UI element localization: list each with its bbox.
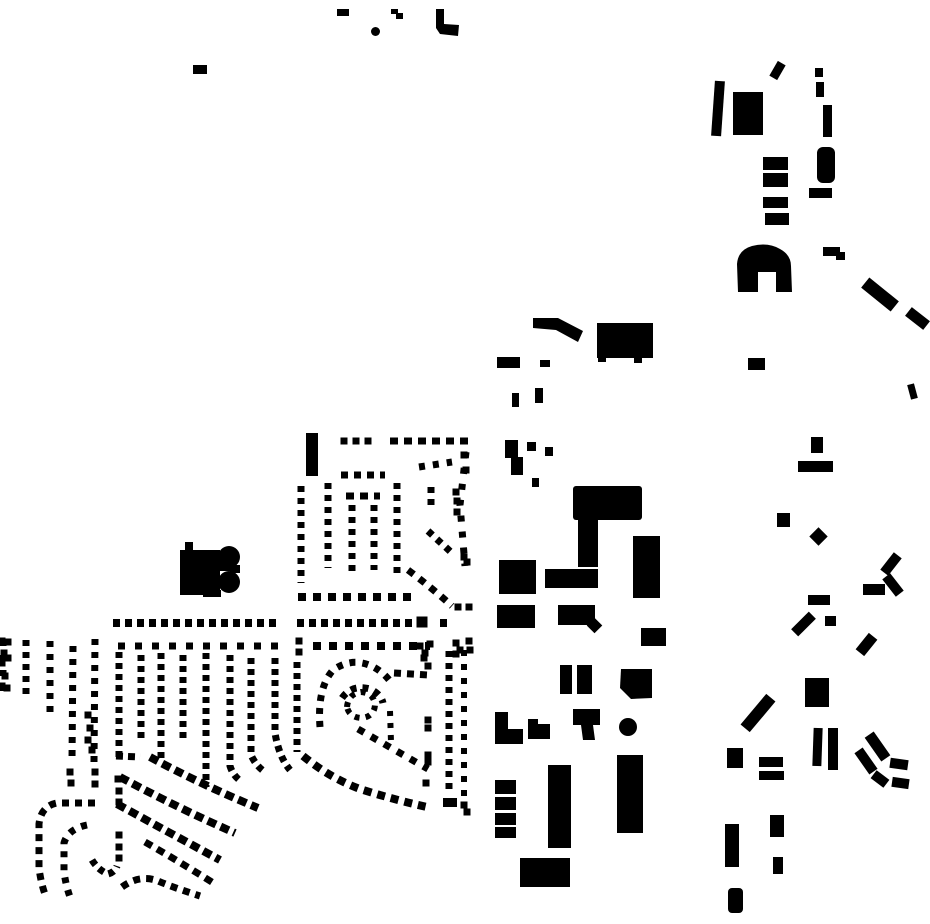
- house-dot: [116, 799, 123, 806]
- building-footprint: [532, 478, 539, 487]
- building-footprint: [733, 92, 763, 135]
- map-canvas: [0, 0, 930, 924]
- house-dot: [425, 725, 432, 732]
- building-footprint: [306, 433, 318, 476]
- house-dot: [453, 640, 460, 647]
- building-footprint: [805, 678, 829, 707]
- building-footprint: [765, 213, 789, 225]
- building-footprint: [573, 486, 642, 520]
- building-footprint: [798, 461, 833, 472]
- house-dot: [2, 673, 9, 680]
- house-dot: [464, 559, 471, 566]
- building-footprint: [218, 546, 240, 568]
- building-footprint: [495, 827, 516, 838]
- house-dot: [467, 647, 474, 654]
- house-dot: [365, 438, 372, 445]
- building-footprint: [185, 542, 193, 551]
- building-footprint: [578, 517, 598, 567]
- building-footprint: [836, 252, 845, 260]
- house-dot: [463, 467, 470, 474]
- building-footprint: [497, 605, 535, 628]
- building-footprint: [598, 356, 606, 362]
- building-footprint: [817, 147, 835, 183]
- building-footprint: [825, 616, 836, 626]
- building-footprint: [180, 550, 220, 595]
- building-footprint: [727, 748, 743, 768]
- building-footprint: [512, 393, 519, 407]
- building-footprint: [763, 197, 788, 208]
- house-dot: [4, 685, 11, 692]
- building-footprint: [545, 569, 598, 588]
- building-footprint: [617, 755, 643, 833]
- building-footprint: [812, 728, 822, 766]
- building-footprint: [728, 888, 743, 913]
- house-dot: [115, 776, 122, 783]
- building-footprint: [560, 665, 572, 694]
- house-dot: [296, 649, 303, 656]
- house-dot: [425, 752, 432, 759]
- building-footprint: [777, 513, 790, 527]
- building-footprint: [597, 323, 653, 358]
- house-dot: [454, 498, 461, 505]
- house-dot: [353, 438, 360, 445]
- building-footprint: [763, 157, 788, 170]
- building-footprint: [759, 757, 783, 767]
- building-footprint: [816, 82, 824, 97]
- building-footprint: [495, 797, 516, 810]
- house-dot: [116, 855, 123, 862]
- building-footprint: [193, 65, 207, 74]
- house-dot: [466, 604, 473, 611]
- house-dot: [425, 759, 432, 766]
- house-dot: [464, 809, 471, 816]
- building-footprint: [495, 813, 516, 825]
- building-footprint: [725, 824, 739, 867]
- house-dot: [85, 712, 92, 719]
- building-footprint: [218, 571, 240, 593]
- building-footprint: [499, 560, 536, 594]
- building-footprint: [823, 105, 832, 137]
- house-dot: [453, 651, 460, 658]
- building-footprint: [828, 728, 838, 770]
- building-footprint: [809, 188, 832, 198]
- dotted-street: [394, 673, 428, 675]
- house-dot: [425, 663, 432, 670]
- house-dot: [417, 617, 428, 628]
- building-footprint: [748, 358, 765, 370]
- dotted-street: [72, 646, 73, 760]
- house-dot: [92, 769, 99, 776]
- building-footprint: [443, 798, 457, 807]
- house-dot: [455, 604, 462, 611]
- house-dot: [466, 638, 473, 645]
- house-dot: [461, 452, 468, 459]
- building-footprint: [773, 857, 783, 874]
- house-dot: [461, 802, 468, 809]
- building-footprint: [811, 437, 823, 453]
- house-dot: [87, 725, 94, 732]
- house-dot: [425, 717, 432, 724]
- building-footprint: [548, 765, 571, 848]
- building-footprint: [535, 388, 543, 403]
- building-footprint: [527, 442, 536, 451]
- house-dot: [5, 655, 12, 662]
- building-footprint: [759, 771, 784, 780]
- house-dot: [85, 737, 92, 744]
- dotted-street: [390, 711, 391, 742]
- building-footprint: [633, 536, 660, 598]
- building-footprint: [577, 665, 592, 694]
- house-dot: [5, 639, 12, 646]
- building-footprint: [770, 815, 784, 837]
- building-footprint: [337, 9, 349, 16]
- building-footprint: [540, 360, 550, 367]
- house-dot: [421, 655, 428, 662]
- house-dot: [0, 660, 6, 667]
- house-dot: [341, 438, 348, 445]
- house-dot: [417, 643, 424, 650]
- house-dot: [89, 747, 96, 754]
- building-footprint: [558, 605, 595, 625]
- building-footprint: [634, 357, 642, 363]
- building-footprint: [371, 27, 380, 36]
- house-dot: [68, 780, 75, 787]
- building-footprint: [497, 357, 520, 368]
- house-dot: [454, 509, 461, 516]
- house-dot: [296, 638, 303, 645]
- building-footprint-map: [0, 0, 930, 924]
- building-footprint: [495, 780, 516, 794]
- building-footprint: [203, 590, 221, 597]
- building-footprint: [641, 628, 666, 646]
- building-footprint: [763, 173, 788, 187]
- house-dot: [423, 780, 430, 787]
- building-footprint: [520, 858, 570, 887]
- house-dot: [67, 769, 74, 776]
- building-footprint: [619, 718, 637, 736]
- building-footprint: [545, 447, 553, 456]
- house-dot: [453, 489, 460, 496]
- building-footprint: [863, 584, 885, 595]
- house-dot: [92, 781, 99, 788]
- building-footprint: [815, 68, 823, 77]
- house-dot: [116, 832, 123, 839]
- house-dot: [116, 844, 123, 851]
- house-dot: [427, 641, 434, 648]
- building-footprint: [808, 595, 830, 605]
- house-dot: [116, 788, 123, 795]
